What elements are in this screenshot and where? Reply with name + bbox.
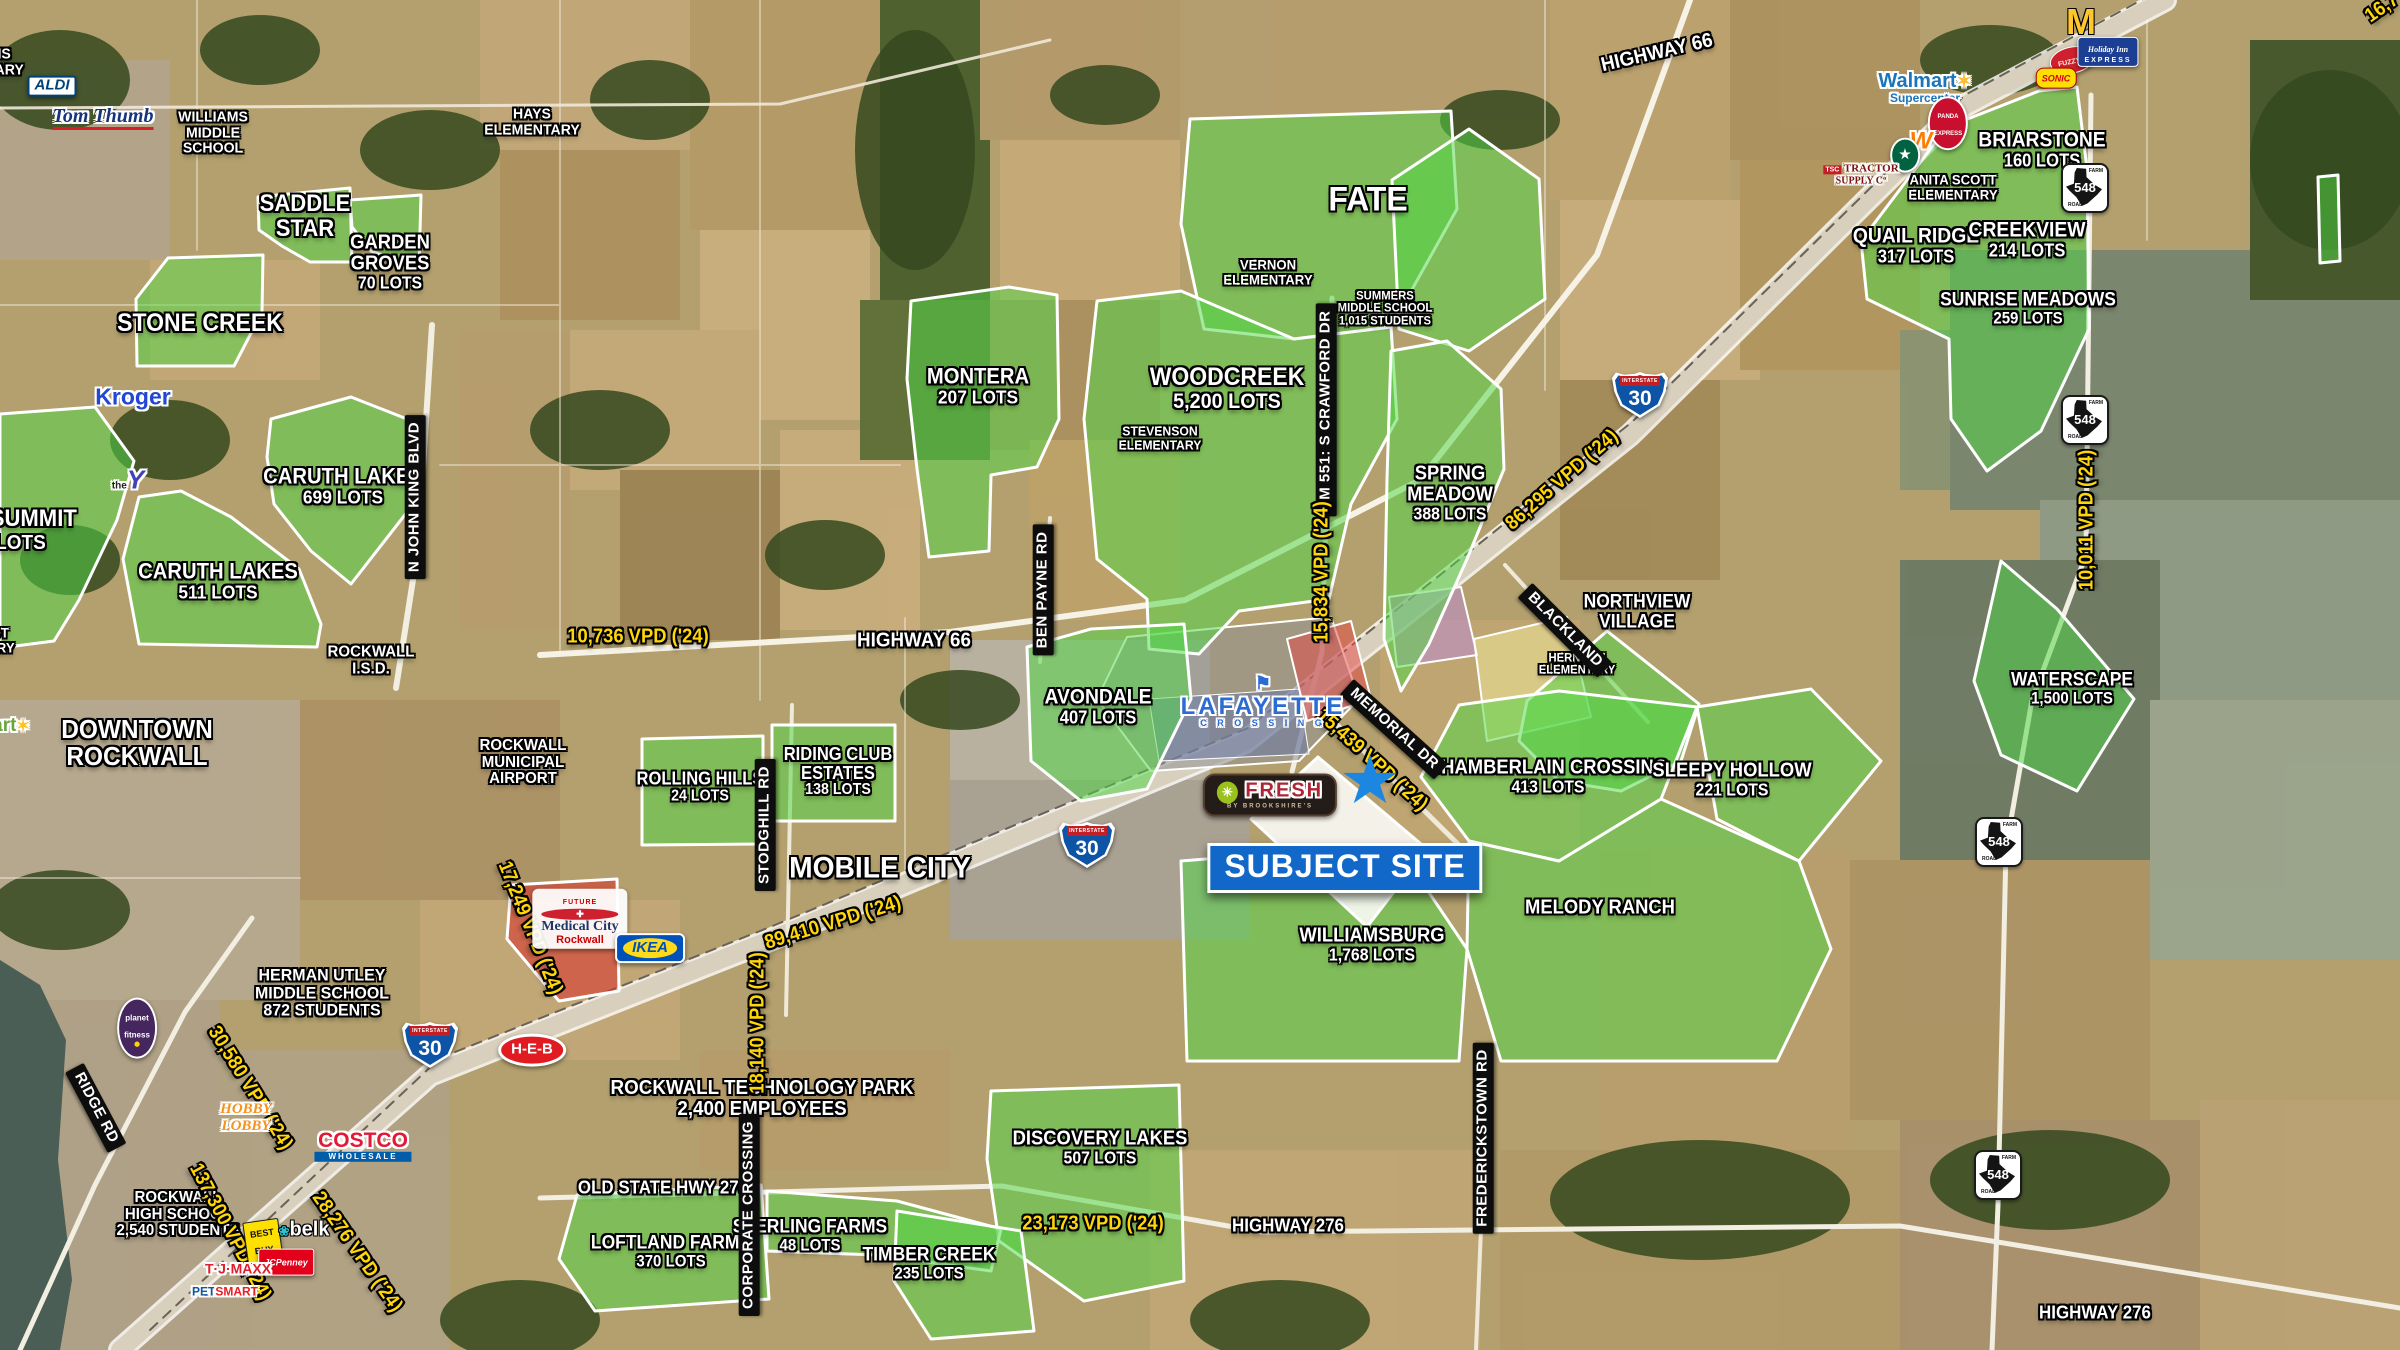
subdivision-name: CARUTH LAKES	[263, 466, 423, 489]
school-text: VERNON ELEMENTARY	[1223, 256, 1312, 287]
traffic-text: 89,410 VPD ('24)	[762, 891, 904, 953]
subdivision-melody-ranch: MELODY RANCH	[1525, 898, 1675, 919]
subdivision-discovery-lakes: DISCOVERY LAKES507 LOTS	[1013, 1129, 1188, 1168]
subdivision-name: SLEEPY HOLLOW	[1652, 761, 1811, 782]
subdivision-lots: 1,768 LOTS	[1299, 946, 1444, 964]
city-label-fate: FATE	[1328, 182, 1407, 217]
school-text: SUMMERS MIDDLE SCHOOL 1,015 STUDENTS	[1338, 288, 1433, 327]
tjmaxx-logo: T·J·MAXX	[205, 1262, 271, 1279]
fm-caption-bottom: ROAD	[2068, 202, 2083, 208]
subdivision-lots: 1,500 LOTS	[2011, 690, 2133, 707]
lafayette-crossing-text: LAFAYETTE	[1181, 694, 1346, 719]
subdivision-name: TIMBER CREEK	[862, 1246, 995, 1266]
kroger-logo: Kroger	[95, 385, 170, 410]
subdivision-lots: 70 LOTS	[350, 274, 430, 292]
walmart-supercenter-ne-text: ✶	[1957, 71, 1972, 91]
school-label-hays-elementary: HAYS ELEMENTARY	[484, 106, 580, 137]
subdivision-lots: 138 LOTS	[784, 783, 893, 799]
traffic-text: 10,736 VPD ('24)	[567, 626, 708, 648]
road-label-ridge-rd: RIDGE RD	[65, 1063, 126, 1153]
subdivision-sunrise-meadows: SUNRISE MEADOWS259 LOTS	[1940, 291, 2116, 328]
walmart-supercenter-ne-text: Walmart	[1878, 70, 1956, 92]
planet-fitness-text: ⬤	[124, 1042, 150, 1047]
subdivision-garden-groves: GARDEN GROVES70 LOTS	[350, 232, 430, 291]
subdivision-name: WATERSCAPE	[2011, 671, 2133, 691]
interstate-30-shield: INTERSTATE30	[402, 1022, 458, 1068]
heb-logo: H-E-B	[498, 1034, 566, 1067]
planet-fitness-logo: planet fitness⬤	[117, 998, 157, 1059]
subdivision-name: SPRING MEADOW	[1407, 463, 1493, 505]
tom-thumb-logo: Tom Thumb	[53, 106, 154, 130]
subdivision-lots: 259 LOTS	[1940, 310, 2116, 327]
subdivision-lots: 507 LOTS	[1013, 1149, 1188, 1167]
traffic-text: 23,173 VPD ('24)	[1022, 1213, 1163, 1235]
fm-number: 548	[2063, 412, 2107, 427]
subdivision-caruth-lakes: CARUTH LAKES511 LOTS	[138, 561, 298, 604]
lafayette-crossing-text: ⚑	[1255, 673, 1271, 693]
school-label-summers-middle-school-1-015-students: SUMMERS MIDDLE SCHOOL 1,015 STUDENTS	[1338, 289, 1433, 326]
holiday-inn-express-text: Holiday Inn	[2088, 45, 2128, 54]
school-text: STEVENSON ELEMENTARY	[1119, 423, 1202, 452]
fm-caption-bottom: ROAD	[1981, 1189, 1996, 1195]
subdivision-lots: 407 LOTS	[1045, 709, 1152, 728]
subdivision-lots: 511 LOTS	[138, 584, 298, 604]
subdivision-loftland-farms: LOFTLAND FARMS370 LOTS	[591, 1234, 751, 1271]
traffic-text: 15,834 VPD ('24)	[1311, 501, 1333, 642]
costco-text: COSTCO	[318, 1129, 408, 1152]
subdivision-name: WILLIAMSBURG	[1299, 926, 1444, 947]
subdivision-lots: 699 LOTS	[263, 489, 423, 509]
subdivision-name: CHAMBERLAIN CROSSING	[1428, 758, 1668, 779]
road-text: STODGHILL RD	[756, 766, 773, 884]
subdivision-lots: 413 LOTS	[1428, 778, 1668, 796]
road-label-stodghill-rd: STODGHILL RD	[755, 759, 776, 891]
subject-site-label: SUBJECT SITE	[1224, 848, 1465, 884]
traffic-count-3: 10,011 VPD ('24)	[2077, 450, 2098, 590]
school-label-vernon-elementary: VERNON ELEMENTARY	[1223, 257, 1312, 286]
road-text: RIDGE RD	[71, 1069, 122, 1145]
ikea-text: IKEA	[623, 938, 677, 958]
sonic-text: SONIC	[2042, 74, 2071, 84]
fresh-by-brookshires-text: ✳	[1217, 782, 1238, 804]
fm-548-shield: FARMROAD548	[2061, 395, 2109, 445]
subdivision-name: BRIARSTONE	[1978, 130, 2105, 152]
starbucks-text: ★	[1899, 147, 1911, 162]
traffic-count-0: 10,736 VPD ('24)	[567, 627, 708, 648]
fm-caption-top: FARM	[2089, 168, 2103, 174]
belk-text: ❀	[279, 1224, 290, 1239]
highway-text: HIGHWAY 66	[1599, 29, 1715, 76]
highway-text: HIGHWAY 276	[1232, 1216, 1344, 1236]
fm-caption-top: FARM	[2089, 400, 2103, 406]
school-text: WILLIAMS ELEMENTARY	[0, 45, 24, 78]
road-label-fm-551-s-crawford-dr: FM 551: S CRAWFORD DR	[1316, 304, 1337, 517]
sonic-logo: SONIC	[2036, 68, 2077, 89]
subdivision-lots: 443 LOTS	[0, 532, 77, 553]
road-text: CORPORATE CROSSING	[740, 1121, 757, 1309]
subdivision-spring-meadow: SPRING MEADOW388 LOTS	[1407, 463, 1493, 522]
traffic-text: 10,011 VPD ('24)	[2076, 450, 2098, 590]
traffic-text: 28,276 VPD ('24)	[308, 1188, 407, 1316]
interstate-30-shield: INTERSTATE30	[1612, 372, 1668, 418]
ymca-text: the	[112, 480, 127, 491]
fm-548-shield: FARMROAD548	[1975, 817, 2023, 867]
area-text: HERMAN UTLEY MIDDLE SCHOOL 872 STUDENTS	[255, 965, 389, 1019]
subdivision-lots: 5,200 LOTS	[1150, 390, 1305, 412]
fresh-by-brookshires-text: FRESH	[1238, 780, 1323, 802]
traffic-count-11: 23,173 VPD ('24)	[1022, 1214, 1163, 1235]
road-text: FREDERICKSTOWN RD	[1474, 1049, 1491, 1226]
subdivision-montera: MONTERA207 LOTS	[927, 366, 1029, 409]
highway-label-2: OLD STATE HWY 276	[578, 1179, 748, 1198]
traffic-count-12: 16,7	[2361, 0, 2400, 27]
interstate-caption: INTERSTATE	[1067, 826, 1107, 836]
subdivision-riding-club-estates: RIDING CLUB ESTATES138 LOTS	[784, 745, 893, 799]
aldi-text: ALDI	[35, 77, 70, 94]
fm-caption-bottom: ROAD	[1982, 856, 1997, 862]
highway-label-0: HIGHWAY 66	[857, 631, 971, 652]
subdivision-chamberlain-crossing: CHAMBERLAIN CROSSING413 LOTS	[1428, 758, 1668, 797]
highway-text: HIGHWAY 66	[857, 630, 971, 652]
subdivision-avondale: AVONDALE407 LOTS	[1045, 687, 1152, 728]
lafayette-crossing-logo: ⚑LAFAYETTEC R O S S I N G	[1181, 674, 1346, 728]
subdivision-name: ROLLING HILLS	[637, 770, 764, 789]
panda-express-logo: PANDA EXPRESS	[1928, 96, 1968, 150]
subdivision-lots: 370 LOTS	[591, 1253, 751, 1270]
belk-text: belk	[289, 1219, 329, 1241]
subdivision-name: CREEKVIEW	[1968, 220, 2085, 242]
petsmart-text: SMART	[215, 1285, 258, 1299]
hobby-lobby-logo: HOBBY LOBBY	[220, 1101, 272, 1135]
tractor-supply-logo: TSC TRACTORSUPPLY Cº	[1823, 159, 1898, 186]
tractor-supply-text: SUPPLY Cº	[1823, 176, 1898, 187]
tom-thumb-text: Tom Thumb	[53, 106, 154, 130]
fm-number: 548	[1977, 834, 2021, 849]
road-label-frederickstown-rd: FREDERICKSTOWN RD	[1473, 1042, 1494, 1233]
school-label-reinhardt-elementary: REINHARDT ELEMENTARY	[0, 625, 15, 654]
area-label-rockwall: ROCKWALL MUNICIPAL AIRPORT	[480, 738, 567, 788]
traffic-count-2: 86,295 VPD ('24)	[1502, 426, 1622, 534]
fresh-by-brookshires-text: BY BROOKSHIRE'S	[1217, 803, 1323, 809]
interstate-number: 30	[1612, 387, 1668, 411]
area-text: ROCKWALL MUNICIPAL AIRPORT	[480, 737, 567, 787]
subdivision-lots: 207 LOTS	[927, 389, 1029, 409]
subdivision-rolling-hills: ROLLING HILLS24 LOTS	[637, 770, 764, 805]
subdivision-woodcreek: WOODCREEK5,200 LOTS	[1150, 364, 1305, 412]
panda-express-text: PANDA EXPRESS	[1934, 114, 1962, 137]
subdivision-name: LOFTLAND FARMS	[591, 1234, 751, 1254]
traffic-count-5: 89,410 VPD ('24)	[762, 892, 903, 953]
school-text: REINHARDT ELEMENTARY	[0, 624, 15, 655]
school-label-williams-middle-school: WILLIAMS MIDDLE SCHOOL	[178, 110, 248, 157]
lafayette-crossing-text: C R O S S I N G	[1181, 719, 1346, 728]
walmart-neighborhood-text: ✶	[16, 718, 29, 735]
highway-text: OLD STATE HWY 276	[578, 1178, 748, 1198]
subdivision-quail-ridge: QUAIL RIDGE317 LOTS	[1853, 226, 1979, 267]
traffic-text: 86,295 VPD ('24)	[1501, 425, 1622, 534]
subdivision-waterscape: WATERSCAPE1,500 LOTS	[2011, 671, 2133, 708]
fm-number: 548	[1976, 1167, 2020, 1182]
school-text: HAYS ELEMENTARY	[484, 105, 580, 138]
interstate-number: 30	[1059, 837, 1115, 861]
holiday-inn-express-text: EXPRESS	[2084, 57, 2131, 64]
highway-label-1: HIGHWAY 66	[1599, 30, 1715, 76]
planet-fitness-text: planet fitness	[124, 1014, 150, 1040]
subdivision-name: SUNRISE MEADOWS	[1940, 291, 2116, 311]
label-overlay: SADDLE STARGARDEN GROVES70 LOTSSTONE CRE…	[0, 0, 2400, 1350]
subdivision-timber-creek: TIMBER CREEK235 LOTS	[862, 1246, 995, 1283]
subdivision-name: RIDING CLUB ESTATES	[784, 745, 893, 782]
kroger-text: Kroger	[95, 384, 170, 410]
walmart-neighborhood-logo: Walmart✶	[0, 716, 30, 736]
subdivision-lots: 235 LOTS	[862, 1265, 995, 1282]
road-text: FM 551: S CRAWFORD DR	[1317, 311, 1334, 510]
subdivision-name: QUAIL RIDGE	[1853, 226, 1979, 248]
traffic-text: 18,140 VPD ('24)	[747, 952, 769, 1093]
subdivision-lots: 24 LOTS	[637, 788, 764, 804]
medical-city-text: Medical City	[541, 920, 618, 935]
city-label-mobile-city: MOBILE CITY	[789, 852, 971, 883]
school-text: ANITA SCOTT ELEMENTARY	[1908, 171, 1997, 202]
fm-caption-top: FARM	[2002, 1155, 2016, 1161]
ymca-logo: theY	[112, 466, 144, 493]
ikea-logo: IKEA	[615, 933, 685, 963]
school-label-williams-elementary: WILLIAMS ELEMENTARY	[0, 46, 24, 77]
subdivision-caruth-lakes: CARUTH LAKES699 LOTS	[263, 466, 423, 509]
costco-text: WHOLESALE	[314, 1152, 411, 1162]
subdivision-stone-creek: STONE CREEK	[117, 310, 283, 336]
area-label-herman-utley: HERMAN UTLEY MIDDLE SCHOOL 872 STUDENTS	[255, 966, 389, 1019]
subdivision-name: WOODCREEK	[1150, 364, 1305, 390]
tractor-supply-text: TSC	[1823, 165, 1841, 174]
city-name: MOBILE CITY	[789, 851, 971, 884]
medical-city-text: FUTURE	[563, 899, 597, 906]
fm-caption-bottom: ROAD	[2068, 434, 2083, 440]
medical-city-logo: FUTURE✚Medical CityRockwall	[532, 889, 627, 949]
heb-text: H-E-B	[511, 1041, 553, 1058]
traffic-count-10: 28,276 VPD ('24)	[308, 1188, 406, 1316]
road-label-corporate-crossing: CORPORATE CROSSING	[739, 1114, 760, 1316]
subdivision-name: SADDLE STAR	[260, 192, 351, 242]
area-text: ROCKWALL I.S.D.	[328, 643, 415, 677]
subdivision-saddle-star: SADDLE STAR	[260, 192, 351, 242]
city-label-downtown-rockwall: DOWNTOWN ROCKWALL	[61, 716, 213, 770]
aldi-logo: ALDI	[28, 76, 77, 97]
road-text: N JOHN KING BLVD	[406, 422, 423, 572]
highway-label-3: HIGHWAY 276	[1232, 1217, 1344, 1236]
highway-label-4: HIGHWAY 276	[2039, 1304, 2151, 1323]
traffic-text: 16,7	[2361, 0, 2400, 27]
medical-city-text: Rockwall	[541, 935, 618, 947]
highway-text: HIGHWAY 276	[2039, 1303, 2151, 1323]
subject-site-banner[interactable]: SUBJECT SITE	[1207, 843, 1482, 893]
petsmart-logo: PETSMART	[192, 1284, 258, 1301]
walmart-neighborhood-text: Walmart	[0, 715, 16, 736]
fm-548-shield: FARMROAD548	[1974, 1150, 2022, 1200]
subdivision-lots: 317 LOTS	[1853, 248, 1979, 267]
fm-caption-top: FARM	[2003, 822, 2017, 828]
subdivision-lots: 388 LOTS	[1407, 505, 1493, 523]
subdivision-name: MONTERA	[927, 366, 1029, 389]
subdivision-name: CARUTH LAKES	[138, 561, 298, 584]
belk-logo: ❀belk	[279, 1220, 330, 1241]
subdivision-name: STONE CREEK	[117, 310, 283, 336]
fresh-by-brookshires-logo: ✳ FRESHBY BROOKSHIRE'S	[1203, 774, 1337, 817]
city-name: FATE	[1328, 180, 1407, 218]
city-name: DOWNTOWN ROCKWALL	[61, 714, 213, 771]
road-label-n-john-king-blvd: N JOHN KING BLVD	[405, 415, 426, 579]
fm-548-shield: FARMROAD548	[2061, 163, 2109, 213]
interstate-30-shield: INTERSTATE30	[1059, 822, 1115, 868]
mcdonalds-logo: M	[2066, 3, 2096, 41]
petsmart-text: PET	[192, 1285, 215, 1299]
fm-number: 548	[2063, 180, 2107, 195]
subdivision-williamsburg: WILLIAMSBURG1,768 LOTS	[1299, 926, 1444, 965]
subdivision-northview-village: NORTHVIEW VILLAGE	[1584, 592, 1691, 632]
subdivision-sleepy-hollow: SLEEPY HOLLOW221 LOTS	[1652, 761, 1811, 800]
ymca-text: Y	[127, 464, 144, 494]
subdivision-lots: 221 LOTS	[1652, 781, 1811, 799]
subdivision-name: DISCOVERY LAKES	[1013, 1129, 1188, 1150]
costco-logo: COSTCOWHOLESALE	[314, 1130, 411, 1162]
subdivision-name: NORTHVIEW VILLAGE	[1584, 592, 1691, 632]
school-text: WILLIAMS MIDDLE SCHOOL	[178, 109, 248, 157]
interstate-caption: INTERSTATE	[1620, 376, 1660, 386]
interstate-number: 30	[402, 1037, 458, 1061]
road-label-ben-payne-rd: BEN PAYNE RD	[1033, 525, 1054, 656]
tractor-supply-text: TRACTOR	[1841, 162, 1898, 174]
map-canvas[interactable]: SADDLE STARGARDEN GROVES70 LOTSSTONE CRE…	[0, 0, 2400, 1350]
area-label-rockwall: ROCKWALL I.S.D.	[328, 644, 415, 677]
tjmaxx-text: T·J·MAXX	[205, 1261, 271, 1277]
subdivision-lots: 214 LOTS	[1968, 242, 2085, 261]
subdivision-creekview: CREEKVIEW214 LOTS	[1968, 220, 2085, 261]
subdivision-name: VIEW SUMMIT	[0, 507, 77, 532]
traffic-count-7: 18,140 VPD ('24)	[748, 952, 769, 1093]
interstate-caption: INTERSTATE	[410, 1026, 450, 1036]
subdivision-view-summit: VIEW SUMMIT443 LOTS	[0, 507, 77, 553]
subdivision-name: AVONDALE	[1045, 687, 1152, 709]
subdivision-name: GARDEN GROVES	[350, 232, 430, 274]
hobby-lobby-text: HOBBY LOBBY	[220, 1101, 272, 1134]
traffic-count-1: 15,834 VPD ('24)	[1312, 501, 1333, 642]
holiday-inn-express-logo: Holiday InnEXPRESS	[2077, 37, 2138, 67]
road-text: BEN PAYNE RD	[1034, 532, 1051, 649]
school-label-stevenson-elementary: STEVENSON ELEMENTARY	[1119, 424, 1202, 451]
subdivision-name: MELODY RANCH	[1525, 898, 1675, 919]
school-label-anita-scott-elementary: ANITA SCOTT ELEMENTARY	[1908, 172, 1997, 201]
